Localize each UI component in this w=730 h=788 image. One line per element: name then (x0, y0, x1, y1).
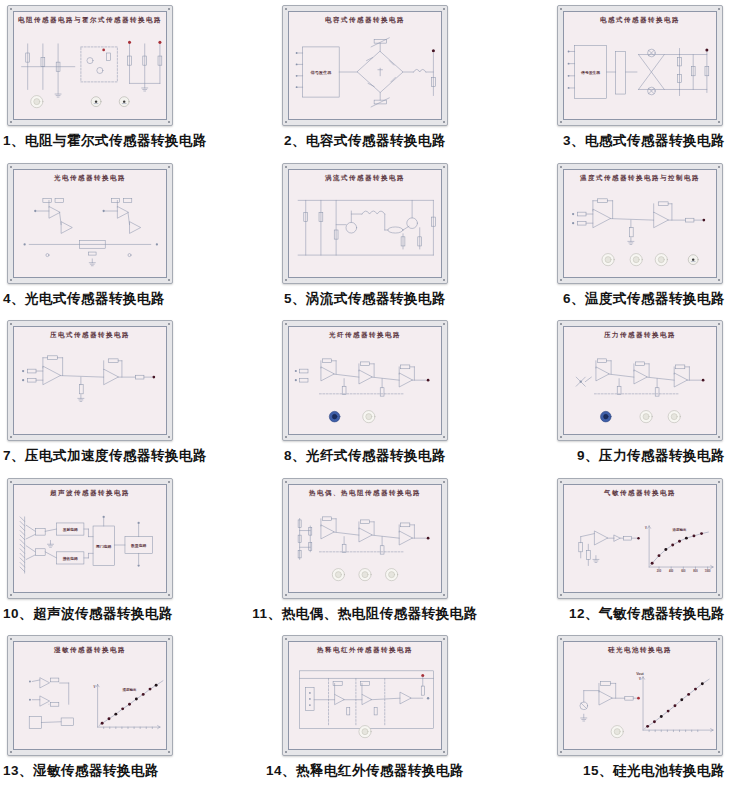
screw-icon (285, 166, 287, 168)
screw-icon (560, 166, 562, 168)
svg-text:400: 400 (669, 569, 674, 573)
panel-caption: 14、热释电红外传感器转换电路 (266, 762, 464, 780)
screw-icon (443, 323, 445, 325)
svg-text:800: 800 (693, 569, 698, 573)
screw-icon (718, 751, 720, 753)
svg-text:接收电路: 接收电路 (62, 556, 78, 561)
circuit-board-panel-5: 涡流式传感器转换电路 (282, 163, 448, 284)
board-title: 热释电红外传感器转换电路 (289, 646, 441, 655)
circuit-sketch (14, 183, 166, 277)
svg-text:V: V (93, 685, 95, 689)
board-title: 电阻传感器电路与霍尔式传感器转换电路 (14, 16, 166, 25)
board-face: 光电传感器转换电路 (13, 169, 167, 278)
catalog-cell-14: 热释电红外传感器转换电路14、热释电红外传感器转换电路 (243, 630, 487, 788)
catalog-cell-1: 电阻传感器电路与霍尔式传感器转换电路1、电阻与霍尔式传感器转换电路 (0, 0, 243, 158)
svg-text:V: V (639, 677, 641, 681)
screw-icon (168, 166, 170, 168)
screw-icon (10, 436, 12, 438)
circuit-board-panel-10: 超声波传感器转换电路发射电路接收电路闸门电路数显电路 (7, 478, 173, 599)
board-title: 超声波传感器转换电路 (14, 489, 166, 498)
screw-icon (443, 8, 445, 10)
board-title: 硅光电池转换电路 (564, 646, 716, 655)
panel-caption: 5、涡流式传感器转换电路 (284, 290, 446, 308)
panel-caption: 8、光纤式传感器转换电路 (284, 447, 446, 465)
svg-text:浓度输出: 浓度输出 (672, 526, 687, 531)
circuit-board-panel-13: 湿敏传感器转换电路湿度输出V (7, 635, 173, 756)
screw-icon (718, 594, 720, 596)
screw-icon (168, 279, 170, 281)
screw-icon (285, 279, 287, 281)
circuit-board-panel-6: 温度式传感器转换电路与控制电路 (557, 163, 723, 284)
circuit-board-panel-14: 热释电红外传感器转换电路 (282, 635, 448, 756)
svg-text:湿度输出: 湿度输出 (122, 687, 137, 692)
screw-icon (285, 594, 287, 596)
panel-caption: 10、超声波传感器转换电路 (3, 605, 173, 623)
circuit-sketch (564, 340, 716, 434)
screw-icon (560, 279, 562, 281)
screw-icon (285, 436, 287, 438)
screw-icon (718, 8, 720, 10)
circuit-sketch (289, 498, 441, 592)
catalog-cell-9: 压力传感器转换电路9、压力传感器转换电路 (487, 315, 730, 473)
screw-icon (443, 436, 445, 438)
circuit-board-panel-1: 电阻传感器电路与霍尔式传感器转换电路 (7, 5, 173, 126)
catalog-cell-8: 光纤传感器转换电路8、光纤式传感器转换电路 (243, 315, 487, 473)
catalog-cell-3: 电感式传感器转换电路信号发生器3、电感式传感器转换电路 (487, 0, 730, 158)
board-title: 热电偶、热电阻传感器转换电路 (289, 489, 441, 498)
board-face: 温度式传感器转换电路与控制电路 (563, 169, 717, 278)
board-title: 光纤传感器转换电路 (289, 331, 441, 340)
board-face: 光纤传感器转换电路 (288, 326, 442, 435)
circuit-board-panel-8: 光纤传感器转换电路 (282, 320, 448, 441)
screw-icon (285, 481, 287, 483)
screw-icon (560, 751, 562, 753)
screw-icon (443, 121, 445, 123)
screw-icon (10, 323, 12, 325)
board-title: 压电式传感器转换电路 (14, 331, 166, 340)
svg-text:闸门电路: 闸门电路 (96, 544, 111, 549)
circuit-board-panel-4: 光电传感器转换电路 (7, 163, 173, 284)
panel-caption: 13、湿敏传感器转换电路 (3, 762, 159, 780)
catalog-cell-10: 超声波传感器转换电路发射电路接收电路闸门电路数显电路10、超声波传感器转换电路 (0, 473, 243, 631)
board-face: 硅光电池转换电路VoutV (563, 641, 717, 750)
screw-icon (718, 638, 720, 640)
circuit-board-panel-7: 压电式传感器转换电路 (7, 320, 173, 441)
screw-icon (168, 594, 170, 596)
screw-icon (718, 323, 720, 325)
board-face: 湿敏传感器转换电路湿度输出V (13, 641, 167, 750)
circuit-board-panel-15: 硅光电池转换电路VoutV (557, 635, 723, 756)
panel-caption: 6、温度式传感器转换电路 (563, 290, 725, 308)
circuit-sketch (289, 340, 441, 434)
circuit-sketch (14, 340, 166, 434)
screw-icon (285, 8, 287, 10)
circuit-sketch (289, 655, 441, 749)
screw-icon (443, 638, 445, 640)
screw-icon (443, 481, 445, 483)
circuit-board-panel-3: 电感式传感器转换电路信号发生器 (557, 5, 723, 126)
screw-icon (443, 751, 445, 753)
screw-icon (443, 594, 445, 596)
screw-icon (560, 436, 562, 438)
screw-icon (560, 638, 562, 640)
screw-icon (10, 121, 12, 123)
circuit-sketch: 信号发生器 (289, 25, 441, 119)
panel-caption: 2、电容式传感器转换电路 (284, 132, 446, 150)
circuit-sketch: 信号发生器 (564, 25, 716, 119)
catalog-cell-15: 硅光电池转换电路VoutV15、硅光电池转换电路 (487, 630, 730, 788)
screw-icon (718, 121, 720, 123)
svg-text:200: 200 (657, 569, 662, 573)
circuit-sketch: 发射电路接收电路闸门电路数显电路 (14, 498, 166, 592)
svg-text:信号发生器: 信号发生器 (310, 70, 333, 76)
screw-icon (443, 279, 445, 281)
board-title: 气敏传感器转换电路 (564, 489, 716, 498)
svg-text:600: 600 (681, 569, 686, 573)
panel-caption: 4、光电式传感器转换电路 (3, 290, 165, 308)
screw-icon (285, 638, 287, 640)
board-title: 湿敏传感器转换电路 (14, 646, 166, 655)
board-title: 光电传感器转换电路 (14, 174, 166, 183)
screw-icon (718, 436, 720, 438)
circuit-board-panel-11: 热电偶、热电阻传感器转换电路 (282, 478, 448, 599)
screw-icon (168, 481, 170, 483)
screw-icon (285, 121, 287, 123)
board-face: 电感式传感器转换电路信号发生器 (563, 11, 717, 120)
screw-icon (168, 436, 170, 438)
circuit-sketch (14, 25, 166, 119)
svg-text:1000: 1000 (705, 569, 711, 573)
screw-icon (10, 279, 12, 281)
catalog-cell-13: 湿敏传感器转换电路湿度输出V13、湿敏传感器转换电路 (0, 630, 243, 788)
board-face: 压电式传感器转换电路 (13, 326, 167, 435)
screw-icon (718, 481, 720, 483)
screw-icon (285, 323, 287, 325)
screw-icon (10, 481, 12, 483)
screw-icon (168, 8, 170, 10)
screw-icon (718, 279, 720, 281)
circuit-sketch (564, 183, 716, 277)
catalog-cell-12: 气敏传感器转换电路2004006008001000浓度输出V12、气敏传感器转换… (487, 473, 730, 631)
screw-icon (560, 121, 562, 123)
board-face: 气敏传感器转换电路2004006008001000浓度输出V (563, 484, 717, 593)
screw-icon (168, 638, 170, 640)
svg-text:V: V (645, 526, 647, 530)
circuit-sketch: VoutV (564, 655, 716, 749)
panel-caption: 12、气敏传感器转换电路 (569, 605, 725, 623)
board-face: 压力传感器转换电路 (563, 326, 717, 435)
screw-icon (10, 751, 12, 753)
catalog-cell-2: 电容式传感器转换电路信号发生器2、电容式传感器转换电路 (243, 0, 487, 158)
catalog-cell-6: 温度式传感器转换电路与控制电路6、温度式传感器转换电路 (487, 158, 730, 316)
circuit-board-panel-9: 压力传感器转换电路 (557, 320, 723, 441)
panel-caption: 3、电感式传感器转换电路 (563, 132, 725, 150)
catalog-cell-11: 热电偶、热电阻传感器转换电路11、热电偶、热电阻传感器转换电路 (243, 473, 487, 631)
screw-icon (10, 166, 12, 168)
screw-icon (168, 751, 170, 753)
panel-caption: 9、压力传感器转换电路 (577, 447, 725, 465)
screw-icon (560, 481, 562, 483)
screw-icon (10, 594, 12, 596)
screw-icon (168, 121, 170, 123)
catalog-cell-7: 压电式传感器转换电路7、压电式加速度传感器转换电路 (0, 315, 243, 473)
screw-icon (168, 323, 170, 325)
circuit-sketch: 湿度输出V (14, 655, 166, 749)
screw-icon (10, 8, 12, 10)
circuit-board-panel-12: 气敏传感器转换电路2004006008001000浓度输出V (557, 478, 723, 599)
circuit-sketch (289, 183, 441, 277)
board-face: 涡流式传感器转换电路 (288, 169, 442, 278)
board-face: 热释电红外传感器转换电路 (288, 641, 442, 750)
circuit-sketch: 2004006008001000浓度输出V (564, 498, 716, 592)
panel-caption: 15、硅光电池转换电路 (583, 762, 725, 780)
board-face: 热电偶、热电阻传感器转换电路 (288, 484, 442, 593)
circuit-board-panel-2: 电容式传感器转换电路信号发生器 (282, 5, 448, 126)
svg-text:数显电路: 数显电路 (130, 543, 146, 548)
svg-text:信号发生器: 信号发生器 (580, 70, 600, 75)
board-title: 涡流式传感器转换电路 (289, 174, 441, 183)
board-face: 电容式传感器转换电路信号发生器 (288, 11, 442, 120)
board-title: 电感式传感器转换电路 (564, 16, 716, 25)
panel-caption: 7、压电式加速度传感器转换电路 (3, 447, 207, 465)
board-title: 电容式传感器转换电路 (289, 16, 441, 25)
screw-icon (560, 323, 562, 325)
catalog-cell-4: 光电传感器转换电路4、光电式传感器转换电路 (0, 158, 243, 316)
screw-icon (10, 638, 12, 640)
screw-icon (560, 8, 562, 10)
board-title: 温度式传感器转换电路与控制电路 (564, 174, 716, 183)
svg-text:Vout: Vout (636, 673, 644, 677)
screw-icon (443, 166, 445, 168)
screw-icon (285, 751, 287, 753)
board-title: 压力传感器转换电路 (564, 331, 716, 340)
screw-icon (560, 594, 562, 596)
svg-text:发射电路: 发射电路 (62, 527, 78, 532)
panel-caption: 11、热电偶、热电阻传感器转换电路 (252, 605, 477, 623)
catalog-cell-5: 涡流式传感器转换电路5、涡流式传感器转换电路 (243, 158, 487, 316)
screw-icon (718, 166, 720, 168)
panel-caption: 1、电阻与霍尔式传感器转换电路 (3, 132, 207, 150)
catalog-grid: 电阻传感器电路与霍尔式传感器转换电路1、电阻与霍尔式传感器转换电路电容式传感器转… (0, 0, 730, 788)
board-face: 超声波传感器转换电路发射电路接收电路闸门电路数显电路 (13, 484, 167, 593)
board-face: 电阻传感器电路与霍尔式传感器转换电路 (13, 11, 167, 120)
